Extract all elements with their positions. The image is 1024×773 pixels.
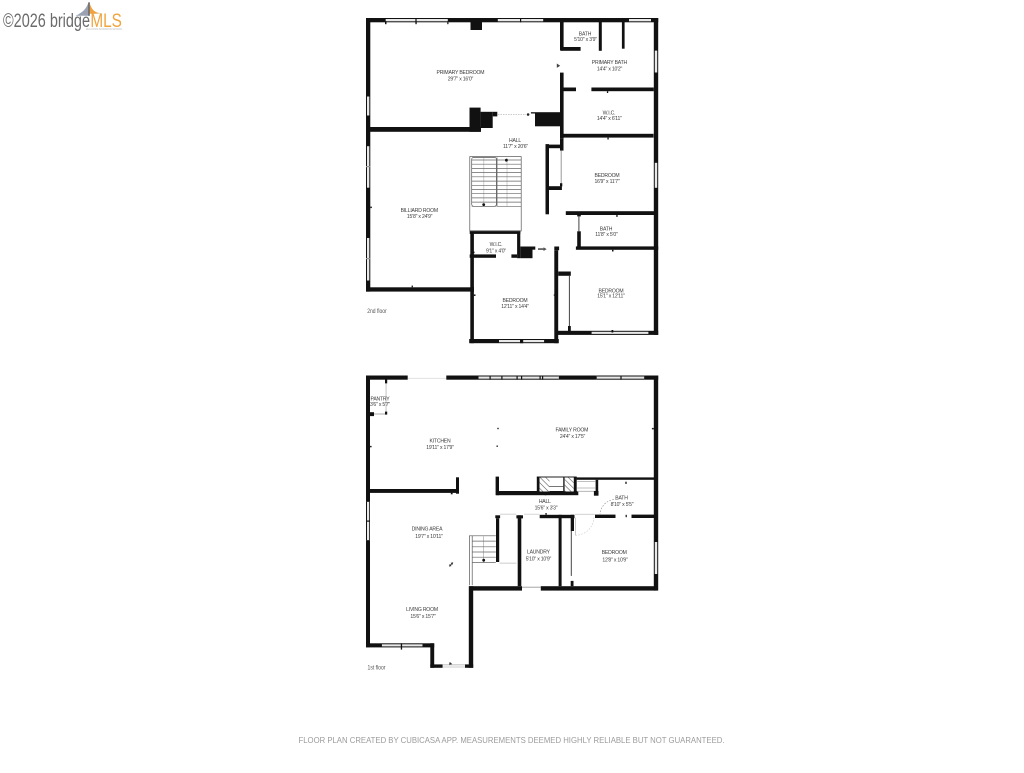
svg-text:24'4" x 17'5": 24'4" x 17'5" [560, 434, 586, 440]
svg-text:19'7" x 10'11": 19'7" x 10'11" [415, 534, 443, 540]
svg-text:15'6" x 15'7": 15'6" x 15'7" [410, 614, 436, 620]
svg-text:15'8" x 24'9": 15'8" x 24'9" [407, 214, 433, 220]
svg-text:W.I.C.: W.I.C. [490, 242, 503, 248]
svg-text:14'4" x 6'11": 14'4" x 6'11" [597, 116, 622, 122]
svg-text:19'11" x 17'9": 19'11" x 17'9" [426, 445, 454, 451]
svg-text:FLOOR PLAN CREATED BY CUBICASA: FLOOR PLAN CREATED BY CUBICASA APP. MEAS… [299, 735, 725, 745]
svg-text:LIVING ROOM: LIVING ROOM [406, 607, 438, 613]
svg-text:BATH: BATH [615, 496, 628, 502]
svg-text:15'1" x 12'11": 15'1" x 12'11" [597, 294, 625, 300]
svg-text:11'8" x 5'0": 11'8" x 5'0" [595, 232, 618, 238]
svg-text:REAL ESTATE INFORMATION NETWOR: REAL ESTATE INFORMATION NETWORK [86, 27, 122, 31]
svg-text:9'1" x 4'0": 9'1" x 4'0" [486, 248, 506, 254]
svg-text:KITCHEN: KITCHEN [430, 439, 451, 445]
svg-text:14'4" x 10'2": 14'4" x 10'2" [597, 66, 623, 72]
svg-text:LAUNDRY: LAUNDRY [527, 549, 551, 555]
svg-text:HALL: HALL [539, 499, 551, 505]
svg-text:29'7" x 16'0": 29'7" x 16'0" [448, 76, 474, 82]
svg-text:FAMILY ROOM: FAMILY ROOM [555, 428, 588, 434]
svg-text:8'10" x 5'5": 8'10" x 5'5" [611, 502, 634, 508]
svg-text:1st floor: 1st floor [368, 665, 386, 672]
svg-text:PRIMARY BATH: PRIMARY BATH [592, 60, 628, 66]
svg-text:5'10" x 10'9": 5'10" x 10'9" [526, 557, 552, 563]
svg-text:BEDROOM: BEDROOM [602, 550, 627, 556]
svg-text:11'7" x 20'6": 11'7" x 20'6" [503, 144, 528, 150]
svg-text:15'6" x 3'3": 15'6" x 3'3" [535, 506, 558, 512]
svg-text:12'8" x 10'9": 12'8" x 10'9" [602, 558, 628, 564]
svg-text:2nd floor: 2nd floor [367, 308, 387, 315]
svg-text:3'6" x 5'7": 3'6" x 5'7" [370, 402, 390, 408]
svg-text:PRIMARY BEDROOM: PRIMARY BEDROOM [437, 70, 485, 76]
svg-text:©2026 bridge: ©2026 bridge [3, 10, 90, 32]
svg-text:5'10" x 3'9": 5'10" x 3'9" [574, 37, 597, 43]
svg-text:12'11" x 14'4": 12'11" x 14'4" [501, 304, 529, 310]
svg-text:16'9" x 11'7": 16'9" x 11'7" [595, 179, 620, 185]
svg-text:DINING AREA: DINING AREA [412, 527, 443, 533]
